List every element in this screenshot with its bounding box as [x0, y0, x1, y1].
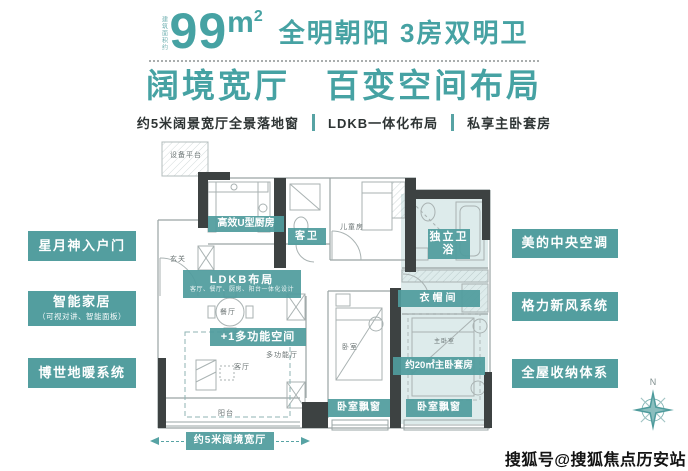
plan-tag-closet: 衣帽间: [398, 290, 480, 307]
compass: N: [630, 378, 676, 444]
plan-tag-ldkb-title: LDKB布局: [210, 274, 275, 287]
tag-smart-home: 智能家居 （可视对讲、智能面板）: [28, 291, 136, 326]
feature-item: 约5米阔景宽厅全景落地窗: [137, 113, 299, 132]
room-label-living: 客厅: [234, 362, 250, 372]
feature-item: 私享主卧套房: [467, 113, 551, 132]
tag-fresh-air: 格力新风系统: [512, 292, 618, 321]
plan-tag-guest-bath: 客卫: [288, 228, 326, 245]
area-value: 99: [170, 6, 228, 56]
tag-label: 格力新风系统: [521, 299, 608, 314]
page: 建筑面积约 99 m2 全明朝阳 3房双明卫 阔境宽厅 百变空间布局 约5米阔景…: [0, 0, 688, 471]
compass-north-label: N: [630, 378, 676, 387]
room-label-dining: 餐厅: [220, 307, 236, 317]
room-label-bedroom: 卧室: [342, 342, 358, 352]
area-unit-superscript: 2: [254, 8, 263, 25]
headline: 全明朝阳 3房双明卫: [279, 20, 529, 46]
tag-label: 全屋收纳体系: [521, 366, 608, 381]
plan-tag-master-bath: 独立卫浴: [428, 229, 470, 259]
tag-entry-door: 星月神入户门: [28, 231, 136, 261]
tag-label: 博世地暖系统: [38, 366, 125, 381]
tag-sublabel: （可视对讲、智能面板）: [38, 311, 126, 322]
plan-tag-bay-window-right: 卧室飘窗: [406, 399, 472, 417]
measure-line: [161, 441, 184, 442]
room-label-master-bedroom: 主卧室: [434, 336, 455, 345]
arrow-left-icon: [150, 437, 159, 445]
feature-separator: [312, 114, 315, 131]
room-label-entry: 玄关: [170, 254, 186, 264]
room-label-balcony: 阳台: [218, 408, 234, 418]
measure-label: 约5米阔境宽厅: [186, 432, 275, 450]
measure-line: [276, 441, 299, 442]
watermark: 搜狐号@搜狐焦点历安站: [505, 446, 686, 470]
feature-separator: [451, 114, 454, 131]
floor-plan: 高效U型厨房 客卫 独立卫浴 LDKB布局 客厅、餐厅、厨房、阳台一体化设计 +…: [150, 136, 512, 452]
feature-row: 约5米阔景宽厅全景落地窗 LDKB一体化布局 私享主卧套房: [0, 113, 688, 132]
page-title: 阔境宽厅 百变空间布局: [0, 68, 688, 104]
area-unit: m2: [227, 8, 263, 38]
compass-rose-icon: [631, 388, 675, 432]
tag-storage-system: 全屋收纳体系: [512, 359, 618, 388]
dotted-divider: [149, 60, 539, 62]
plan-tag-bay-window-left: 卧室飘窗: [328, 399, 390, 417]
tag-label: 星月神入户门: [38, 239, 125, 254]
tag-label: 智能家居: [53, 295, 111, 310]
plan-tag-ldkb-sub: 客厅、餐厅、厨房、阳台一体化设计: [190, 287, 294, 294]
room-label-multifunction-hall: 多功能厅: [266, 350, 298, 360]
room-label-equipment-platform: 设备平台: [170, 150, 202, 160]
tag-floor-heating: 博世地暖系统: [28, 358, 136, 388]
area-row: 建筑面积约 99 m2 全明朝阳 3房双明卫: [0, 0, 688, 58]
tag-label: 美的中央空调: [521, 236, 608, 251]
plan-tag-multifunction: +1多功能空间: [210, 328, 306, 346]
room-label-kids-room: 儿童房: [340, 222, 364, 232]
arrow-right-icon: [301, 437, 310, 445]
tag-central-ac: 美的中央空调: [512, 229, 618, 258]
header: 建筑面积约 99 m2 全明朝阳 3房双明卫 阔境宽厅 百变空间布局 约5米阔景…: [0, 0, 688, 132]
feature-item: LDKB一体化布局: [328, 113, 438, 132]
area-note-vertical: 建筑面积约: [160, 16, 169, 51]
width-measure: 约5米阔境宽厅: [150, 431, 310, 451]
plan-tag-ldkb: LDKB布局 客厅、餐厅、厨房、阳台一体化设计: [183, 270, 301, 298]
plan-tag-kitchen: 高效U型厨房: [208, 216, 284, 232]
plan-tag-master-suite: 约20㎡主卧套房: [393, 357, 485, 375]
